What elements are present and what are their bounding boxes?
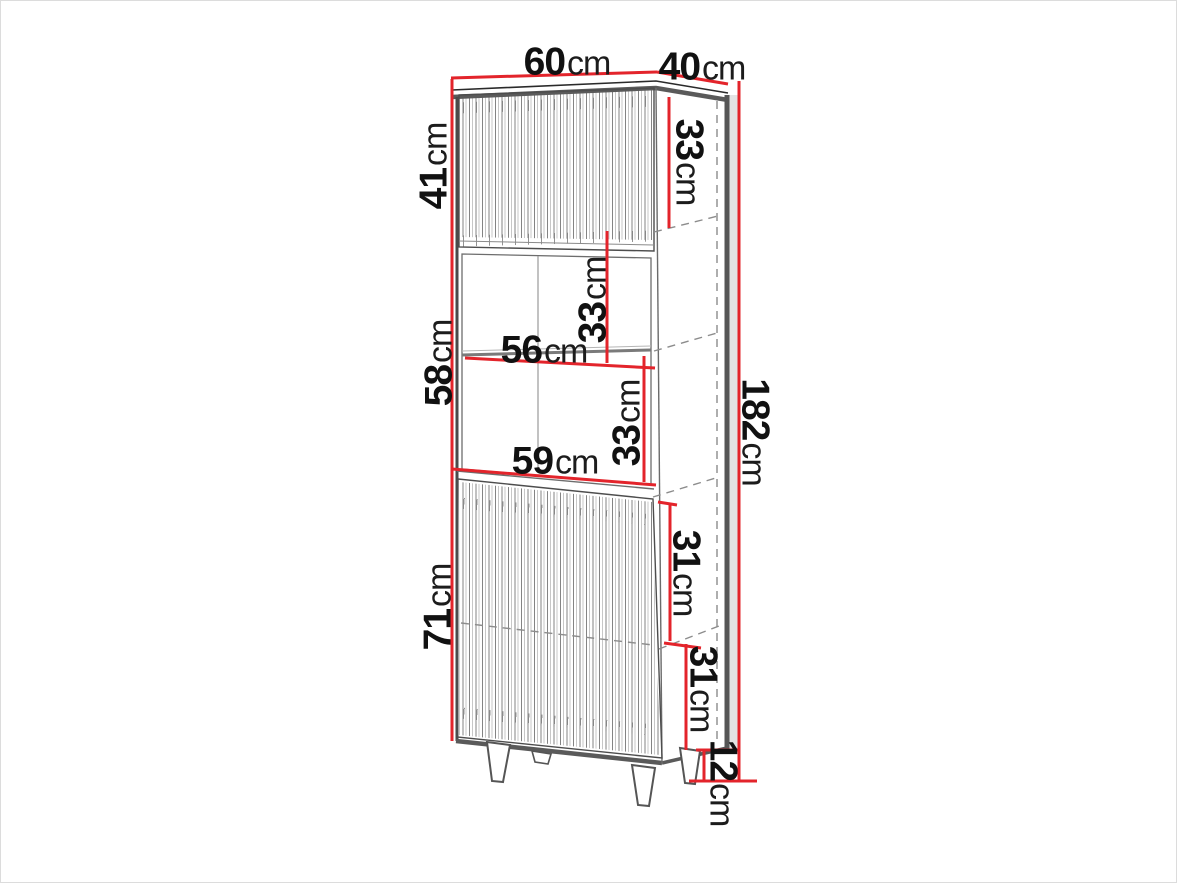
dim-lower-inner-upper-value: 31 — [667, 530, 706, 571]
dim-upper-door-height-value: 41 — [415, 168, 454, 209]
dim-niche-total-height: 58cm — [420, 320, 459, 407]
dim-lower-inner-lower-unit: cm — [685, 689, 719, 732]
dim-lower-door-height-unit: cm — [423, 564, 457, 607]
dim-top-depth-value: 40 — [659, 48, 700, 87]
dim-top-depth: 40cm — [659, 48, 746, 87]
dim-leg-height: 12cm — [704, 740, 743, 827]
dim-lower-inner-upper: 31cm — [667, 530, 706, 617]
dim-total-height: 182cm — [736, 378, 775, 485]
dim-top-width-unit: cm — [567, 47, 610, 81]
dim-niche-total-height-unit: cm — [424, 320, 458, 363]
dim-lower-door-height: 71cm — [419, 564, 458, 651]
dim-niche-lower-height: 33cm — [608, 380, 647, 467]
dim-lower-inner-upper-unit: cm — [668, 573, 702, 616]
dimension-diagram: 60cm 40cm 41cm 33cm 33cm 56cm 58cm 33cm … — [0, 0, 1177, 883]
dim-lower-top-width-unit: cm — [555, 446, 598, 480]
dim-upper-door-height-unit: cm — [419, 123, 453, 166]
front-right-leg — [632, 765, 655, 806]
dim-niche-lower-height-unit: cm — [612, 380, 646, 423]
dim-leg-height-value: 12 — [704, 740, 743, 781]
dim-upper-inner-height-value: 33 — [670, 119, 709, 160]
dim-lower-inner-lower: 31cm — [684, 646, 723, 733]
dim-niche-total-height-value: 58 — [420, 365, 459, 406]
dim-niche-lower-height-value: 33 — [608, 425, 647, 466]
center-support — [532, 751, 551, 764]
dim-total-height-value: 182 — [736, 378, 775, 440]
dim-upper-inner-height: 33cm — [670, 119, 709, 206]
dim-upper-door-height: 41cm — [415, 123, 454, 210]
dim-shelf-width-unit: cm — [544, 335, 587, 369]
front-left-leg — [487, 742, 510, 782]
dim-lower-inner-lower-value: 31 — [684, 646, 723, 687]
dim-top-width: 60cm — [524, 43, 611, 82]
dim-top-width-value: 60 — [524, 43, 565, 82]
dim-niche-upper-height-unit: cm — [578, 257, 612, 300]
back-right-leg — [680, 748, 700, 784]
dim-top-depth-unit: cm — [702, 52, 745, 86]
dim-shelf-width-value: 56 — [501, 331, 542, 370]
dim-lower-door-height-value: 71 — [419, 609, 458, 650]
dim-total-height-unit: cm — [737, 442, 771, 485]
dim-leg-height-unit: cm — [705, 783, 739, 826]
dim-shelf-width: 56cm — [501, 331, 588, 370]
dim-lower-top-width: 59cm — [512, 442, 599, 481]
dim-lower-top-width-value: 59 — [512, 442, 553, 481]
dim-upper-inner-height-unit: cm — [671, 162, 705, 205]
